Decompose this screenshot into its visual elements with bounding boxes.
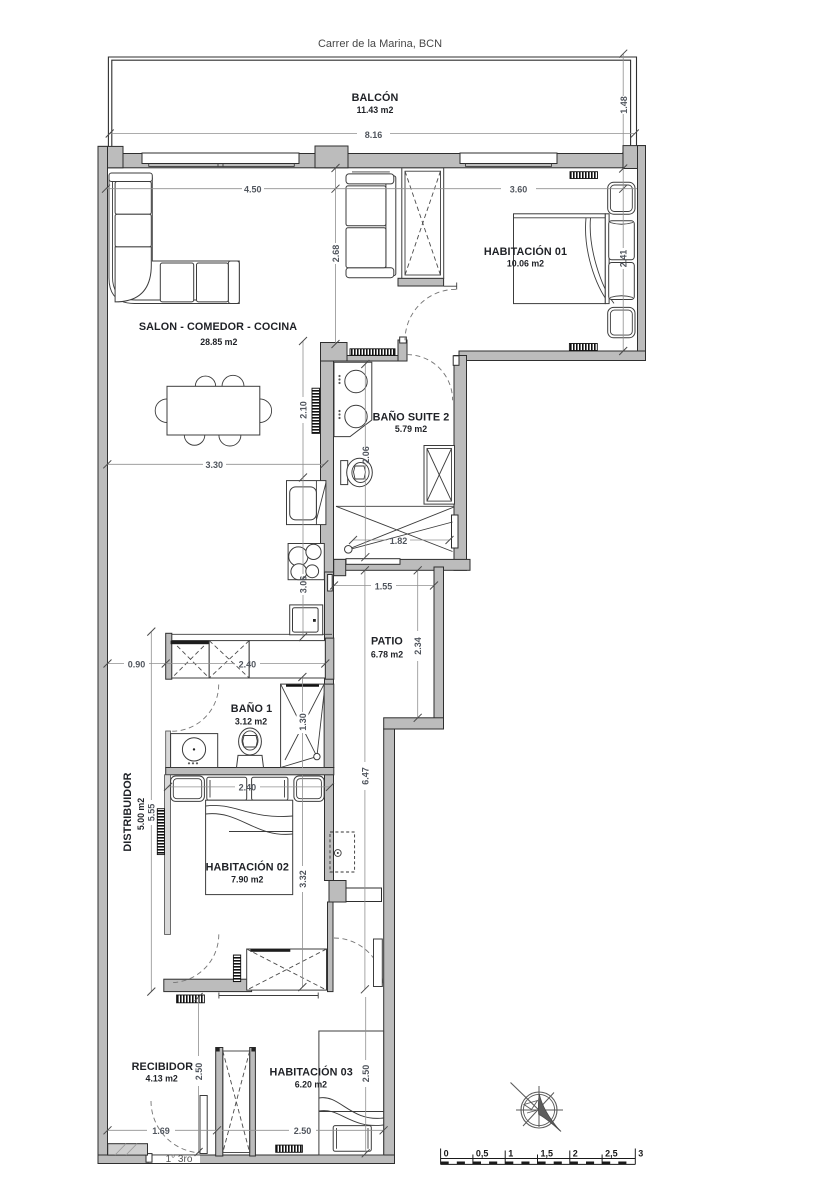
- svg-text:5.55: 5.55: [147, 804, 157, 822]
- svg-text:2.40: 2.40: [239, 783, 257, 793]
- svg-text:BAÑO SUITE 2: BAÑO SUITE 2: [373, 411, 450, 424]
- svg-text:2.68: 2.68: [331, 245, 341, 263]
- svg-text:4.50: 4.50: [244, 184, 262, 194]
- svg-text:1: 1: [508, 1149, 513, 1159]
- svg-text:28.85 m2: 28.85 m2: [200, 337, 237, 347]
- svg-text:SALON - COMEDOR - COCINA: SALON - COMEDOR - COCINA: [139, 321, 297, 333]
- svg-text:PATIO: PATIO: [371, 636, 403, 648]
- svg-text:1.30: 1.30: [298, 713, 308, 731]
- svg-text:0.90: 0.90: [128, 659, 146, 669]
- svg-text:2,5: 2,5: [605, 1149, 618, 1159]
- svg-text:HABITACIÓN 02: HABITACIÓN 02: [206, 861, 289, 874]
- svg-text:1.82: 1.82: [390, 536, 408, 546]
- svg-text:3: 3: [638, 1149, 643, 1159]
- svg-text:2.40: 2.40: [239, 659, 257, 669]
- svg-text:3.06: 3.06: [299, 576, 309, 594]
- svg-text:7.90 m2: 7.90 m2: [231, 875, 263, 885]
- svg-text:2.34: 2.34: [413, 637, 423, 655]
- svg-text:3.32: 3.32: [298, 870, 308, 888]
- svg-text:0: 0: [444, 1149, 449, 1159]
- svg-text:6.20 m2: 6.20 m2: [295, 1080, 327, 1090]
- svg-text:2: 2: [573, 1149, 578, 1159]
- svg-text:3.12 m2: 3.12 m2: [235, 717, 267, 727]
- svg-text:HABITACIÓN 03: HABITACIÓN 03: [270, 1066, 353, 1079]
- svg-text:1° 3ro: 1° 3ro: [166, 1154, 193, 1165]
- svg-text:5.00 m2: 5.00 m2: [136, 798, 146, 830]
- svg-text:8.16: 8.16: [365, 130, 383, 140]
- svg-text:DISTRIBUIDOR: DISTRIBUIDOR: [122, 772, 134, 851]
- svg-text:5.79 m2: 5.79 m2: [395, 424, 427, 434]
- svg-text:1.69: 1.69: [152, 1126, 170, 1136]
- svg-text:4.13 m2: 4.13 m2: [146, 1074, 178, 1084]
- svg-text:11.43 m2: 11.43 m2: [357, 105, 394, 115]
- svg-text:1.55: 1.55: [375, 581, 393, 591]
- svg-text:Carrer de la Marina, BCN: Carrer de la Marina, BCN: [318, 38, 442, 50]
- svg-text:BAÑO 1: BAÑO 1: [231, 702, 272, 715]
- svg-text:2.06: 2.06: [361, 446, 371, 464]
- svg-text:2.50: 2.50: [194, 1063, 204, 1081]
- svg-text:2.10: 2.10: [299, 401, 309, 419]
- svg-text:1,5: 1,5: [541, 1149, 554, 1159]
- svg-text:1.48: 1.48: [619, 96, 629, 114]
- svg-text:2.41: 2.41: [619, 250, 629, 268]
- svg-text:10.06 m2: 10.06 m2: [507, 259, 544, 269]
- svg-text:6.47: 6.47: [360, 767, 370, 785]
- svg-text:0,5: 0,5: [476, 1149, 489, 1159]
- svg-text:RECIBIDOR: RECIBIDOR: [132, 1061, 194, 1073]
- svg-text:2.50: 2.50: [294, 1126, 312, 1136]
- svg-text:BALCÓN: BALCÓN: [352, 91, 399, 104]
- svg-text:HABITACIÓN 01: HABITACIÓN 01: [484, 245, 567, 258]
- svg-text:6.78 m2: 6.78 m2: [371, 650, 403, 660]
- svg-text:3.30: 3.30: [206, 460, 224, 470]
- svg-text:3.60: 3.60: [510, 184, 528, 194]
- svg-text:2.50: 2.50: [361, 1065, 371, 1083]
